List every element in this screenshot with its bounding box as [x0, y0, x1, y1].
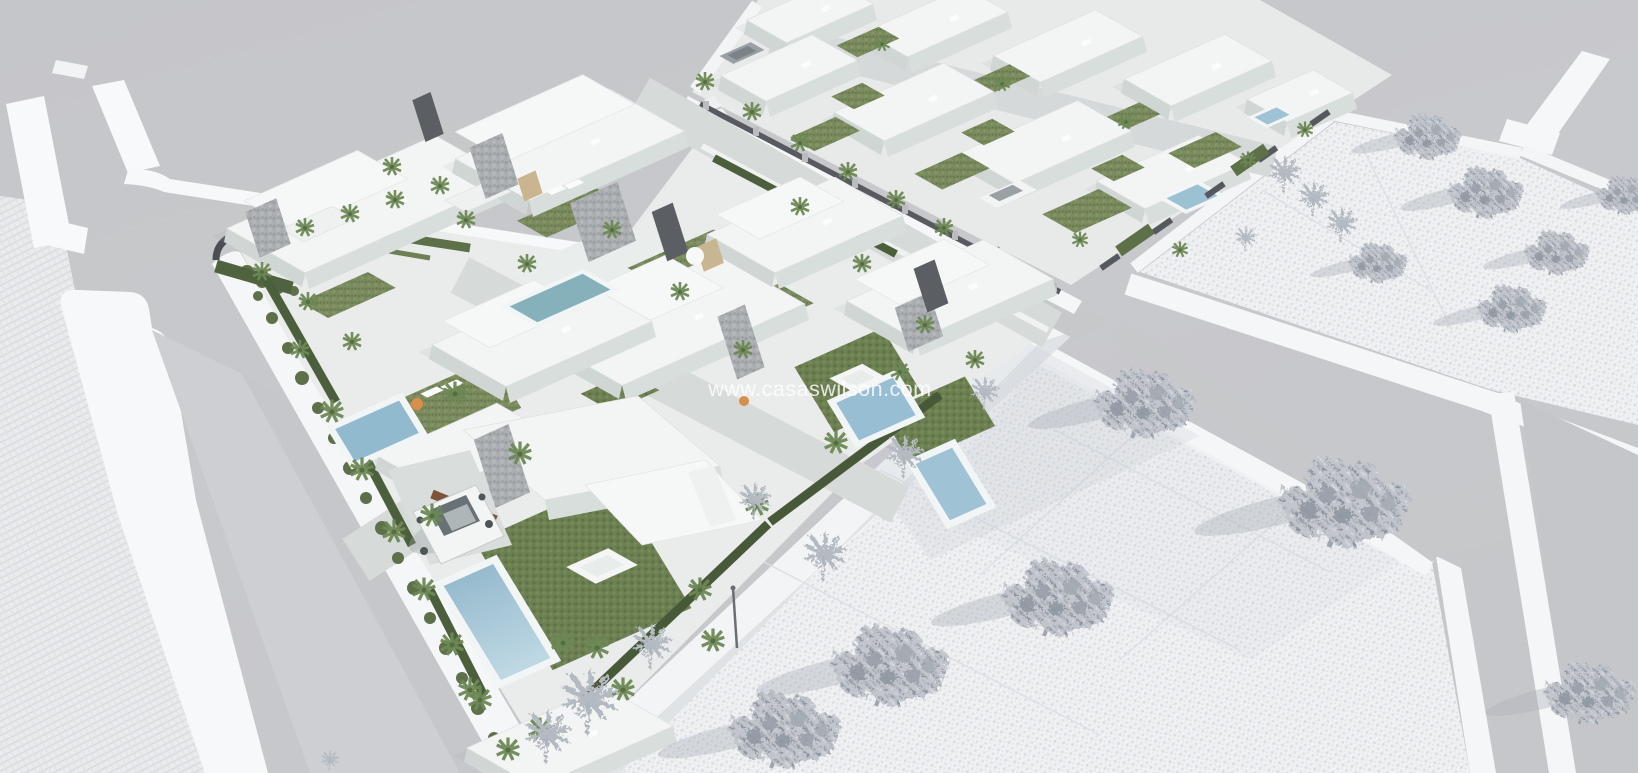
svg-text:www.casaswilson.com: www.casaswilson.com — [707, 377, 931, 401]
